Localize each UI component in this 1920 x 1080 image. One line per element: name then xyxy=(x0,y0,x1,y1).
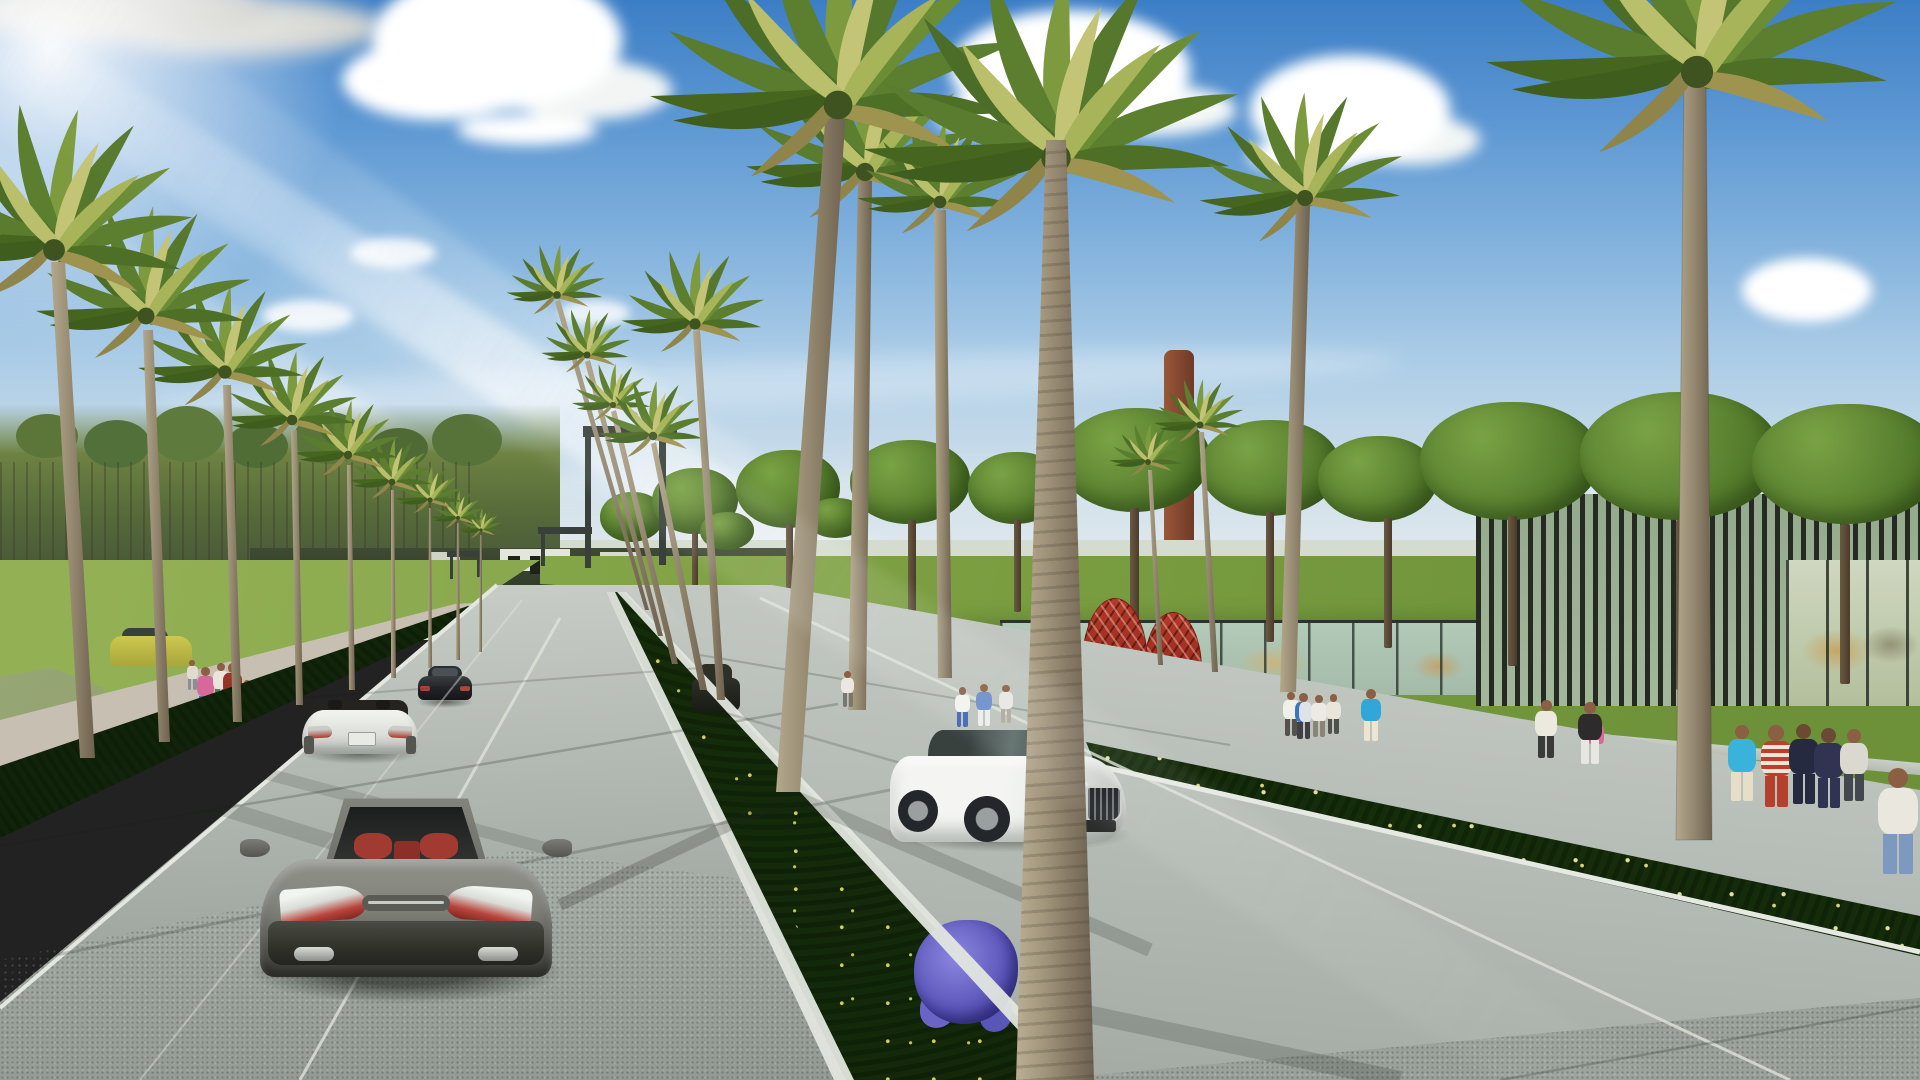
person-torso xyxy=(1361,699,1381,721)
roadster-license-plate xyxy=(348,732,376,746)
person-legs xyxy=(978,710,990,726)
edge-walker xyxy=(1876,768,1920,874)
lawn-walker-1 xyxy=(1534,700,1558,758)
person-head xyxy=(1541,700,1552,711)
maserati-exhaust-left xyxy=(294,947,334,961)
maserati-exhaust-right xyxy=(478,947,518,961)
maserati-taillight-right xyxy=(445,884,533,924)
person-legs xyxy=(1364,721,1379,741)
person-torso xyxy=(976,692,992,710)
lawn-walker-2 xyxy=(1577,702,1603,764)
park-walker xyxy=(840,671,855,707)
person-head xyxy=(1584,702,1596,714)
person-torso xyxy=(1728,739,1757,772)
coupe-rear-wheel xyxy=(898,790,938,832)
roadster-headrest-right xyxy=(376,700,390,709)
roadster-headrest-left xyxy=(328,700,342,709)
person-head xyxy=(1002,685,1009,692)
person-legs xyxy=(1538,736,1554,758)
person-head xyxy=(1315,695,1323,703)
person-head xyxy=(1821,728,1836,743)
white-coupe xyxy=(884,726,1134,856)
person-torso xyxy=(955,695,970,712)
person-head xyxy=(1366,689,1376,699)
maserati-seat-right xyxy=(420,833,458,859)
person-legs xyxy=(1818,778,1840,808)
roadster-wheel-right xyxy=(406,736,416,754)
person-legs xyxy=(1731,772,1752,801)
person-legs xyxy=(1765,776,1788,807)
person-head xyxy=(1330,694,1338,702)
person-head xyxy=(1768,725,1784,741)
boulevard-scene xyxy=(0,0,1920,1080)
gray-sports-coupe xyxy=(250,795,562,1007)
group-mid-4 xyxy=(1325,694,1342,734)
person-legs xyxy=(1297,722,1310,739)
roadster-wheel-left xyxy=(304,736,314,754)
person-legs xyxy=(1313,721,1325,737)
person-torso xyxy=(1840,743,1867,774)
person-torso xyxy=(841,678,855,693)
person-head xyxy=(1796,724,1811,739)
person-head xyxy=(1735,725,1749,739)
person-legs xyxy=(843,693,853,707)
crosser-2 xyxy=(975,684,993,726)
maserati-mirror-left xyxy=(240,839,270,857)
maserati-chrome-strip xyxy=(368,901,444,904)
group-right-gray xyxy=(1839,729,1869,801)
person-torso xyxy=(1535,711,1557,736)
person-head xyxy=(1888,768,1908,788)
person-legs xyxy=(1844,774,1864,801)
person-head xyxy=(1299,693,1308,702)
person-legs xyxy=(1883,834,1913,874)
person-legs xyxy=(957,712,968,727)
coupe-grille xyxy=(1086,786,1122,822)
person-legs xyxy=(1328,719,1339,734)
person-head xyxy=(959,687,967,695)
person-torso xyxy=(1878,788,1918,834)
person-legs xyxy=(1001,709,1012,723)
person-head xyxy=(1847,729,1861,743)
white-roadster xyxy=(298,696,422,766)
person-torso xyxy=(1326,702,1341,719)
person-head xyxy=(980,684,988,692)
crosser-3 xyxy=(998,685,1014,723)
maserati-mirror-right xyxy=(542,839,572,857)
maserati-seat-left xyxy=(354,833,392,859)
person-torso xyxy=(1578,714,1602,741)
man-blue-shirt xyxy=(1360,689,1382,741)
maserati-taillight-left xyxy=(279,884,367,924)
crosser-1 xyxy=(954,687,971,727)
coupe-front-wheel xyxy=(964,796,1010,842)
person-head xyxy=(844,671,851,678)
person-torso xyxy=(999,692,1013,708)
person-legs xyxy=(1581,740,1598,764)
group-right-blue-tee xyxy=(1726,725,1758,801)
